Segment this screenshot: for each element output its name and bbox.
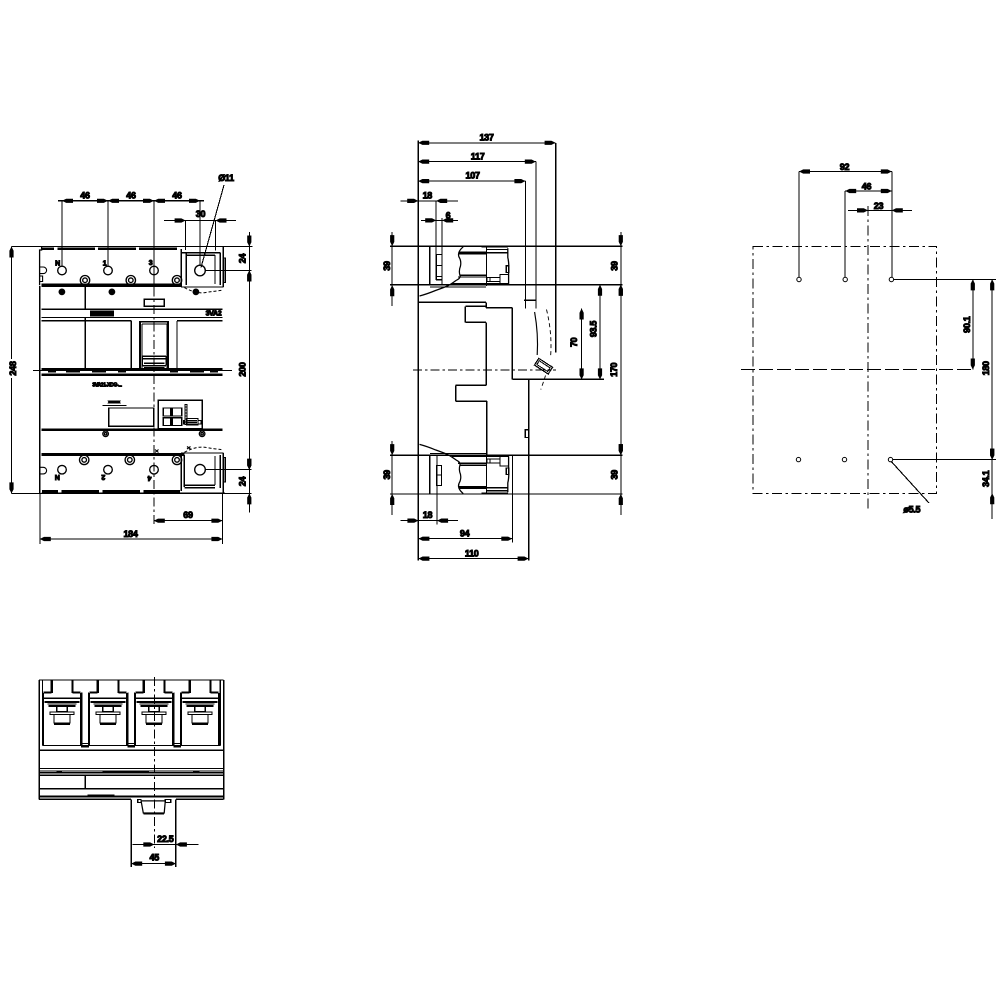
svg-text:180: 180 (981, 361, 991, 375)
svg-text:39: 39 (382, 261, 392, 271)
svg-text:45: 45 (149, 853, 159, 863)
svg-text:N: N (55, 473, 60, 480)
svg-text:46: 46 (862, 181, 872, 191)
svg-text:Ø11: Ø11 (218, 173, 234, 183)
svg-text:22.5: 22.5 (157, 834, 174, 844)
svg-text:6: 6 (446, 210, 451, 220)
svg-text:23: 23 (874, 201, 884, 211)
svg-text:34.1: 34.1 (981, 470, 991, 487)
svg-text:24: 24 (238, 254, 248, 264)
svg-text:110: 110 (465, 548, 479, 558)
svg-text:1: 1 (103, 260, 107, 267)
svg-text:ø5.5: ø5.5 (903, 505, 920, 515)
svg-text:30: 30 (196, 209, 206, 219)
svg-text:248: 248 (8, 361, 18, 375)
svg-text:3: 3 (149, 260, 153, 267)
svg-text:107: 107 (466, 171, 480, 181)
svg-text:2: 2 (101, 473, 105, 480)
svg-text:46: 46 (172, 190, 182, 200)
svg-text:46: 46 (80, 190, 90, 200)
svg-text:200: 200 (238, 362, 248, 376)
svg-text:46: 46 (126, 190, 136, 200)
svg-text:39: 39 (382, 470, 392, 480)
svg-text:N: N (55, 260, 60, 267)
svg-text:3VA2: 3VA2 (206, 310, 222, 317)
svg-text:92: 92 (840, 162, 850, 172)
svg-text:4: 4 (147, 474, 151, 481)
svg-text:69: 69 (183, 510, 193, 520)
svg-text:93.5: 93.5 (589, 321, 599, 338)
svg-text:70: 70 (569, 337, 579, 347)
svg-text:184: 184 (123, 529, 137, 539)
svg-text:39: 39 (609, 470, 619, 480)
svg-text:137: 137 (479, 133, 493, 143)
svg-text:117: 117 (471, 151, 485, 161)
svg-text:xxxxxxx: xxxxxxx (108, 400, 120, 404)
svg-text:3VA21-XDG-...: 3VA21-XDG-... (92, 382, 122, 388)
svg-text:39: 39 (609, 261, 619, 271)
svg-text:18: 18 (423, 190, 433, 200)
svg-text:94: 94 (460, 528, 470, 538)
svg-text:24: 24 (238, 477, 248, 487)
svg-text:90.1: 90.1 (962, 316, 972, 333)
svg-text:18: 18 (423, 510, 433, 520)
svg-text:170: 170 (609, 362, 619, 376)
